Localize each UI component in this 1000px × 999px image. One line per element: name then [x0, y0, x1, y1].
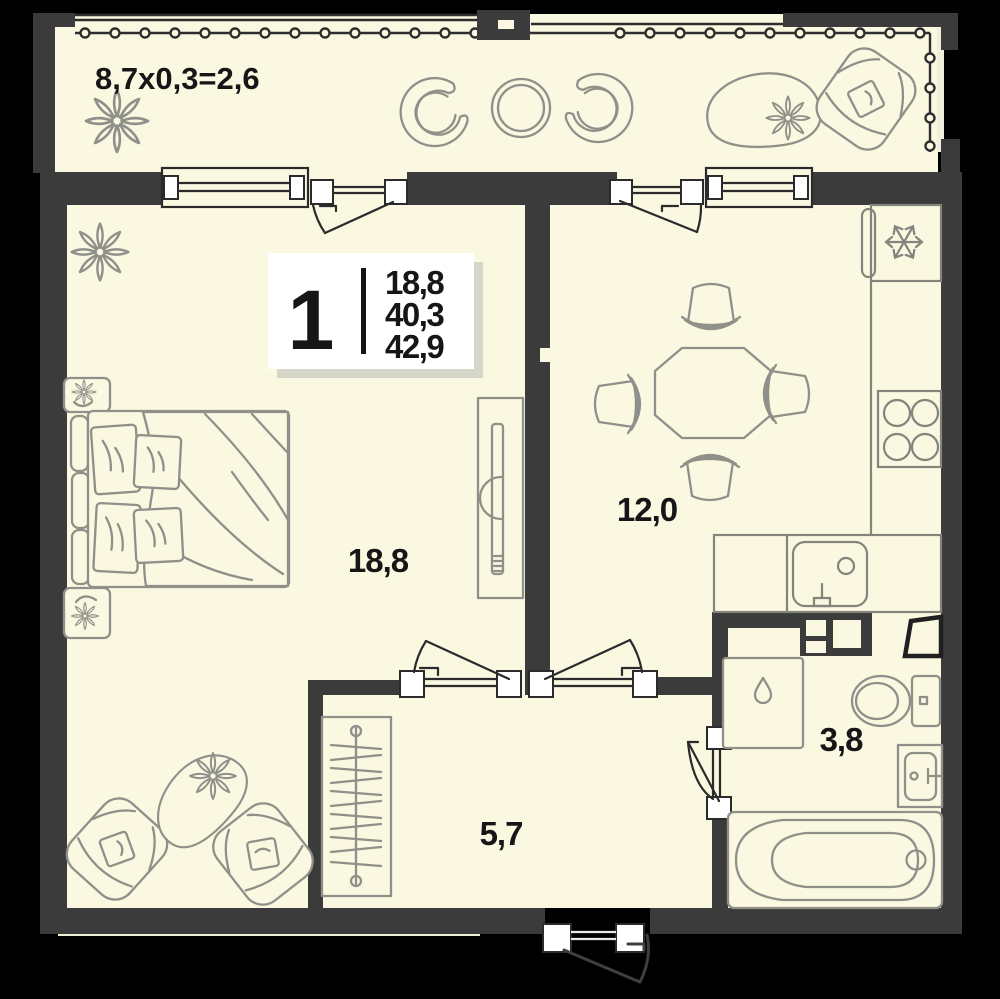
- outer-wall-bottom-left: [40, 908, 545, 934]
- corner-duct: [905, 617, 941, 656]
- nightstand: [64, 378, 110, 412]
- fridge: [862, 205, 941, 281]
- nightstand: [64, 588, 110, 638]
- bathtub: [728, 812, 942, 908]
- wall-living-hallway: [308, 680, 323, 908]
- living-area-label: 18,8: [348, 542, 409, 579]
- kitchen-area-label: 12,0: [617, 491, 677, 528]
- info-card: 1 18,8 40,3 42,9: [268, 253, 483, 378]
- floor-plan-page: 1 18,8 40,3 42,9 8,7x0,3=2,6 18,8 12,0 5…: [0, 0, 1000, 999]
- stove: [878, 391, 941, 467]
- card-total-area: 42,9: [385, 328, 444, 365]
- balcony-area-label: 8,7x0,3=2,6: [95, 61, 260, 96]
- bathroom-area-label: 3,8: [820, 721, 864, 758]
- wall-living-kitchen: [525, 172, 550, 695]
- card-divider: [361, 268, 366, 354]
- pillow: [134, 508, 184, 563]
- kitchen-window: [706, 168, 812, 207]
- washing-machine: [723, 658, 803, 748]
- floor-plan: 1 18,8 40,3 42,9 8,7x0,3=2,6 18,8 12,0 5…: [0, 0, 1000, 999]
- wardrobe: [322, 717, 391, 896]
- bed: [71, 411, 289, 587]
- outer-wall-left: [40, 172, 67, 934]
- toilet: [852, 676, 940, 726]
- wash-basin: [898, 745, 942, 807]
- dining-table: [655, 348, 771, 438]
- room-count: 1: [288, 273, 333, 367]
- kitchen-sink-counter: [714, 535, 941, 612]
- outer-wall-right: [941, 172, 962, 934]
- hallway: [322, 717, 391, 896]
- pillow: [134, 435, 182, 489]
- hallway-area-label: 5,7: [480, 815, 523, 852]
- living-room-window: [162, 168, 308, 207]
- outer-wall-bottom-right: [650, 908, 962, 934]
- tv-unit: [478, 398, 523, 598]
- round-pouf: [492, 79, 550, 137]
